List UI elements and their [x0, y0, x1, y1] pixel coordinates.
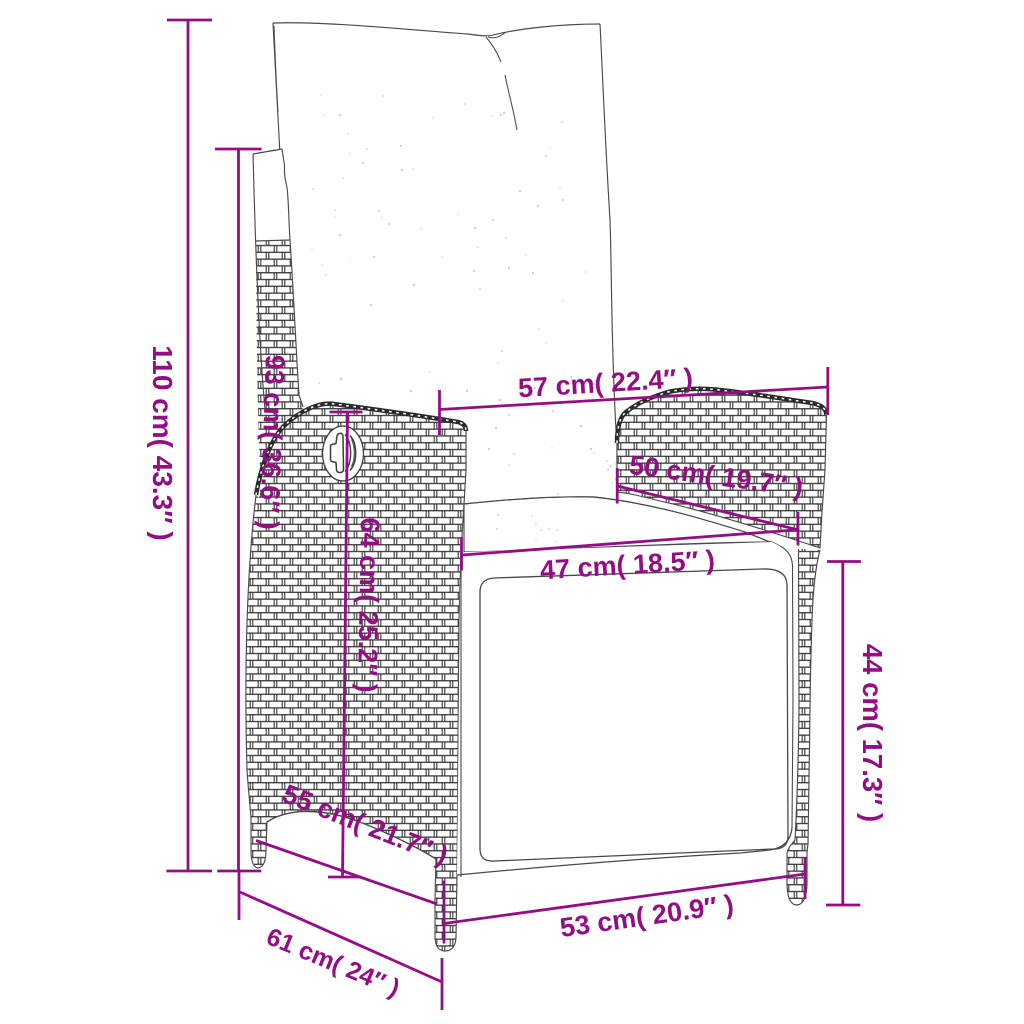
- svg-text:44 cm( 17.3″ ): 44 cm( 17.3″ ): [857, 644, 888, 822]
- svg-text:64 cm( 25.2″ ): 64 cm( 25.2″ ): [352, 517, 385, 693]
- svg-text:110 cm( 43.3″ ): 110 cm( 43.3″ ): [147, 345, 178, 541]
- svg-text:93 cm( 36.6″ ): 93 cm( 36.6″ ): [254, 354, 290, 530]
